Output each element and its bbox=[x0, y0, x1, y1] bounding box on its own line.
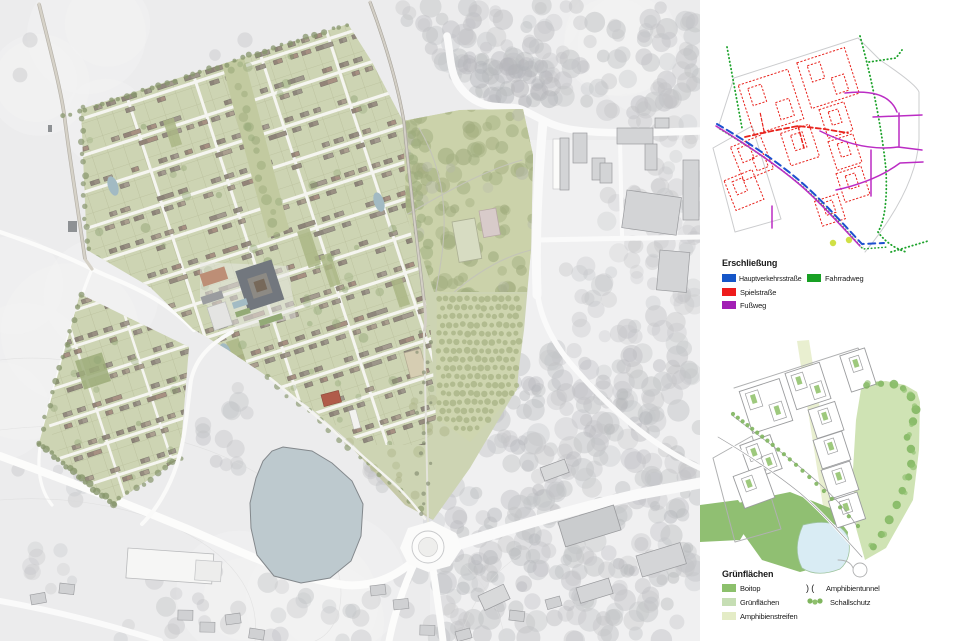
svg-text:Fahrradweg: Fahrradweg bbox=[825, 274, 864, 283]
svg-text:Amphibienstreifen: Amphibienstreifen bbox=[740, 612, 797, 621]
svg-text:Erschließung: Erschließung bbox=[722, 258, 777, 268]
svg-text:Hauptverkehrsstraße: Hauptverkehrsstraße bbox=[739, 276, 802, 283]
svg-text:Amphibientunnel: Amphibientunnel bbox=[826, 584, 880, 593]
svg-text:Grünflächen: Grünflächen bbox=[722, 569, 773, 579]
svg-text:Schallschutz: Schallschutz bbox=[830, 598, 871, 607]
svg-text:Grünflächen: Grünflächen bbox=[740, 598, 779, 607]
svg-text:Spielstraße: Spielstraße bbox=[740, 288, 776, 297]
svg-text:Fußweg: Fußweg bbox=[740, 301, 766, 310]
svg-text:) (: ) ( bbox=[806, 583, 814, 593]
svg-text:Boitop: Boitop bbox=[740, 584, 760, 593]
